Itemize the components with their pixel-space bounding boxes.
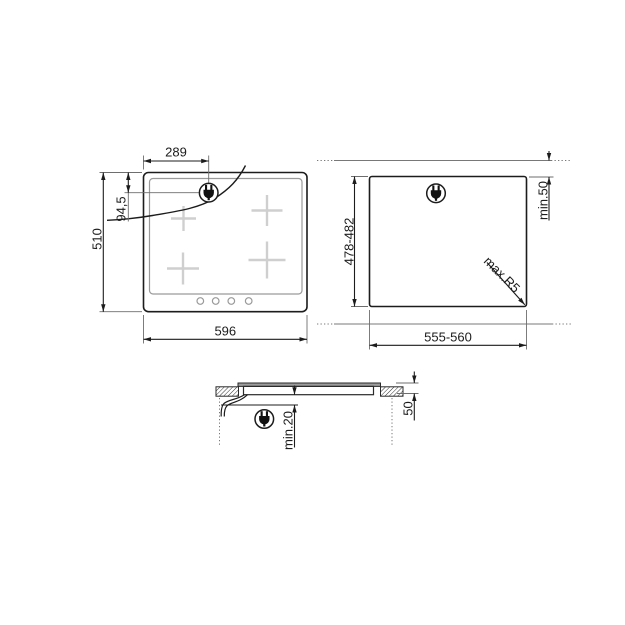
dim-label-width: 596: [214, 323, 236, 338]
worktop-section-left: [216, 387, 239, 396]
side-section-view: min.20 50: [216, 372, 419, 451]
worktop-section-right: [381, 387, 404, 396]
power-plug-icon: [427, 184, 446, 203]
hob-body-section: [244, 386, 374, 394]
dim-label-cutout-width: 555-560: [424, 329, 472, 344]
hob-outline: [144, 173, 308, 312]
dim-label-plug-x: 289: [165, 145, 187, 160]
dim-label-depth: 50: [400, 401, 415, 415]
dim-label-cutout-height: 478-482: [342, 218, 357, 266]
hob-top-view: 289 94,5 510 596: [90, 145, 308, 344]
technical-drawing: 289 94,5 510 596: [0, 0, 625, 625]
dim-label-rear-clearance: min.50: [536, 181, 551, 220]
power-plug-icon: [199, 183, 218, 202]
dim-label-plug-y: 94,5: [113, 196, 128, 221]
dim-label-bottom-clearance: min.20: [280, 411, 295, 450]
cutout-outline: [370, 177, 527, 307]
power-plug-icon: [255, 410, 274, 429]
supply-cable: [221, 395, 247, 417]
hob-installation-diagram: 289 94,5 510 596: [0, 0, 625, 625]
dim-label-height: 510: [90, 228, 105, 250]
worktop-cutout-view: 478-482 555-560 min.50 max.R5: [317, 151, 572, 350]
